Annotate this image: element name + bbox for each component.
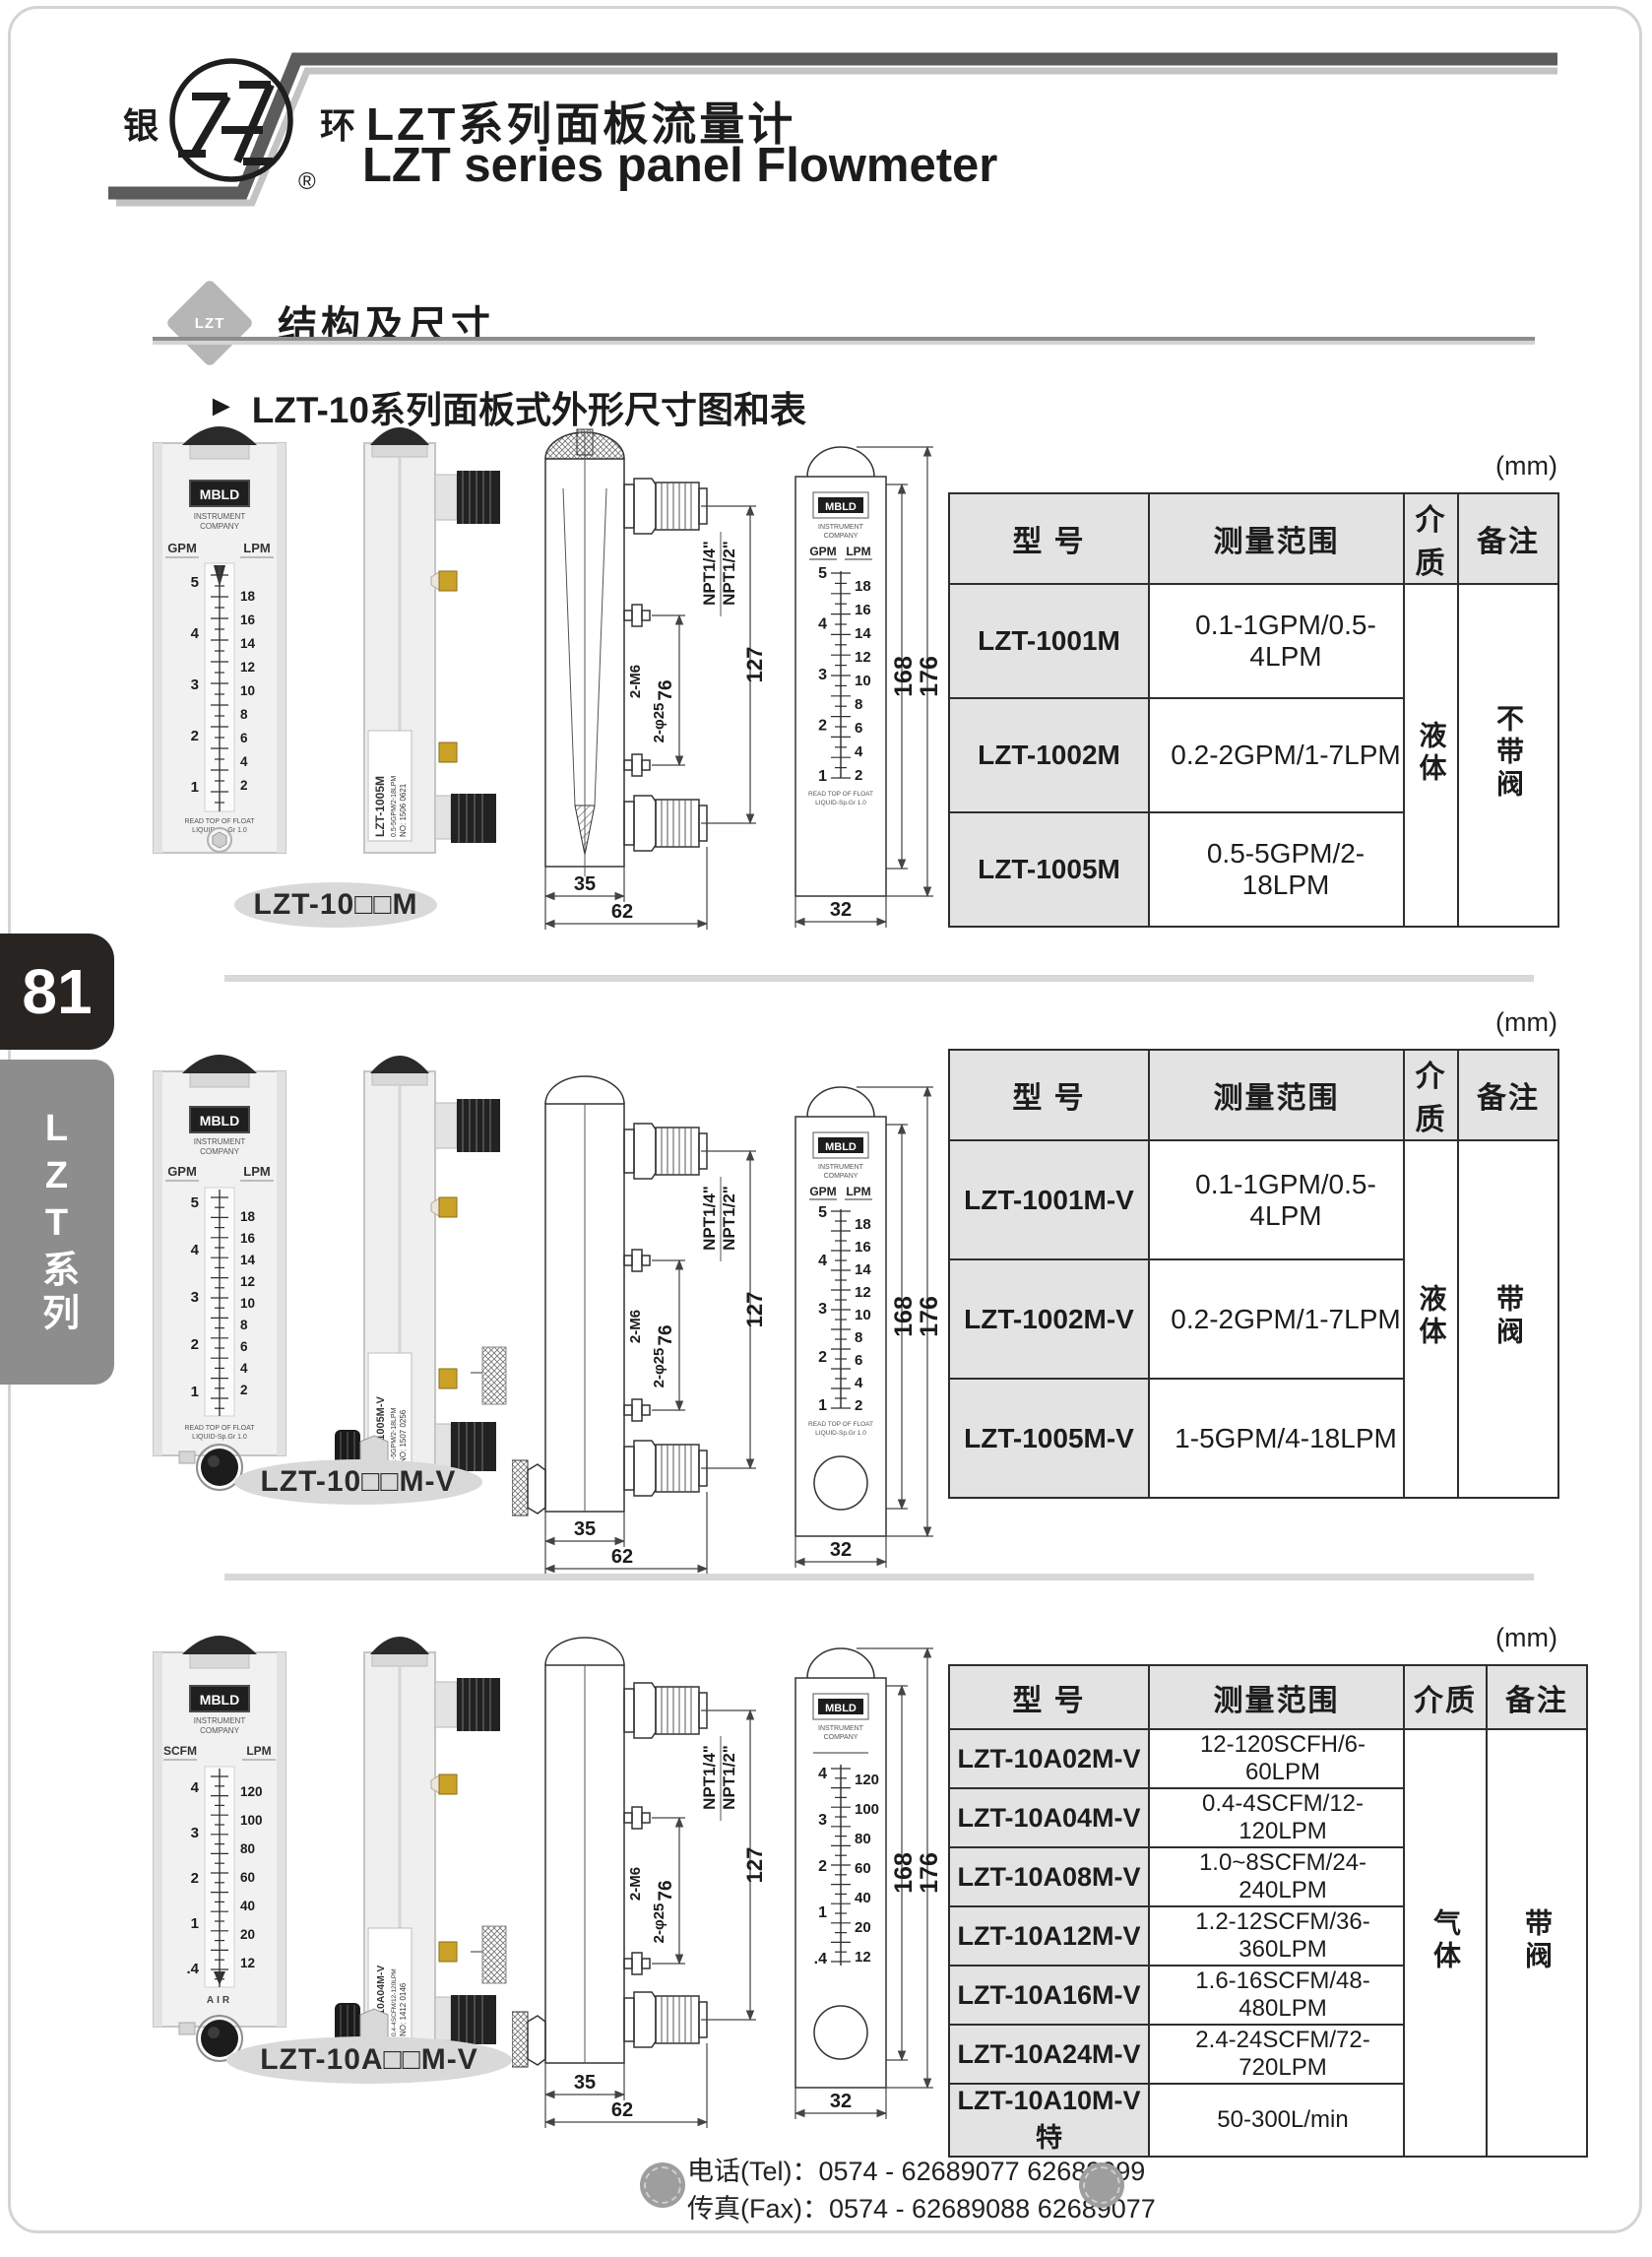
range-cell: 12-120SCFH/6-60LPM	[1149, 1729, 1404, 1788]
svg-text:16: 16	[240, 613, 256, 627]
svg-text:1: 1	[191, 1384, 199, 1400]
dim-168: 168	[890, 1296, 918, 1337]
range-cell: 0.1-1GPM/0.5-4LPM	[1149, 584, 1404, 698]
panel-bolt-bottom	[624, 1399, 650, 1421]
brand-sub2: COMPANY	[824, 1173, 858, 1180]
dim-176: 176	[916, 1296, 943, 1337]
section-rule	[153, 337, 1535, 345]
bottom-fitting	[624, 796, 707, 851]
svg-text:12: 12	[240, 1956, 255, 1970]
dim-168: 168	[890, 1852, 918, 1894]
brand-sub1: INSTRUMENT	[818, 524, 864, 531]
dim-npt12: NPT1/2"	[720, 541, 738, 606]
scale-right: 1201008060402012	[855, 1772, 879, 1966]
dim-127: 127	[742, 1847, 767, 1884]
svg-text:.4: .4	[186, 1961, 199, 1977]
svg-text:60: 60	[855, 1860, 871, 1877]
svg-text:80: 80	[855, 1831, 871, 1847]
unit-left: SCFM	[163, 1744, 197, 1758]
svg-text:2: 2	[240, 1383, 248, 1397]
model-cell: LZT-10A10M-V特	[949, 2084, 1149, 2157]
panel-bolt-top	[624, 1250, 650, 1271]
dim-npt14: NPT1/4"	[700, 541, 719, 606]
loose-valve-part	[482, 1926, 506, 1983]
dim-35: 35	[574, 873, 596, 895]
dim-32: 32	[830, 1539, 852, 1561]
brand-sub2: COMPANY	[200, 1726, 240, 1735]
cap	[370, 427, 429, 445]
dim-76: 76	[656, 679, 676, 700]
dim-m6: 2-M6	[627, 665, 644, 698]
logo-monogram	[178, 85, 273, 161]
unit-left: GPM	[167, 541, 197, 555]
dim-176: 176	[916, 1852, 943, 1894]
svg-text:1: 1	[191, 1915, 199, 1932]
valve-knob	[512, 2012, 545, 2067]
svg-text:14: 14	[855, 1261, 871, 1278]
registered-mark-icon: ®	[298, 168, 316, 195]
cap	[370, 1637, 429, 1654]
scale-left: 54321	[818, 1204, 827, 1414]
model-cell: LZT-10A04M-V	[949, 1788, 1149, 1847]
model-label-row1: LZT-10□□M	[234, 882, 437, 928]
brand-text: MBLD	[825, 1141, 857, 1153]
cap	[182, 426, 257, 445]
range-cell: 1.0~8SCFM/24-240LPM	[1149, 1847, 1404, 1906]
read-note-1: READ TOP OF FLOAT	[184, 818, 255, 825]
table-row: LZT-1001M-V0.1-1GPM/0.5-4LPM液体带阀	[949, 1140, 1558, 1259]
svg-text:4: 4	[191, 1779, 200, 1796]
read-note-2: LIQUID-Sp.Gr 1.0	[815, 800, 866, 806]
unit-right: LPM	[243, 1164, 270, 1179]
panel-bolt-top	[624, 1807, 650, 1829]
drawing-side-row1: 35 62 127 76 NPT1/4" NPT1/2" 2-M6 2-φ25	[512, 423, 807, 945]
dim-176: 176	[916, 656, 943, 697]
sticker-no: NO: 1507 0256	[399, 1409, 408, 1463]
panel-hole	[814, 1456, 867, 1510]
photo-flowmeter-side-row2: LZT-1005M-V 1-5GPM/2-18LPM NO: 1507 0256	[335, 1046, 517, 1494]
col-medium: 介质	[1404, 1050, 1458, 1140]
spec-table-row1: 型 号 测量范围 介质 备注 LZT-1001M0.1-1GPM/0.5-4LP…	[948, 492, 1559, 928]
svg-text:16: 16	[855, 1239, 871, 1256]
remark-cell: 带阀	[1458, 1140, 1558, 1498]
svg-text:10: 10	[855, 673, 871, 689]
read-note-1: READ TOP OF FLOAT	[184, 1425, 255, 1432]
model-cell: LZT-10A08M-V	[949, 1847, 1149, 1906]
dim-phi25: 2-φ25	[651, 703, 667, 743]
svg-text:4: 4	[855, 743, 863, 760]
col-model: 型 号	[949, 493, 1149, 584]
svg-text:4: 4	[240, 1361, 248, 1376]
panel-bolt-bottom	[624, 1953, 650, 1974]
svg-text:4: 4	[855, 1375, 863, 1391]
medium-cell: 气体	[1404, 1729, 1487, 2157]
series-tab-label: LZT系列	[31, 1108, 85, 1336]
brand-sub1: INSTRUMENT	[818, 1725, 864, 1732]
air-label: AIR	[207, 1995, 232, 2006]
panel-bolt-bottom	[624, 754, 650, 776]
dim-127: 127	[742, 647, 767, 683]
svg-text:1: 1	[818, 1904, 827, 1921]
unit-right: LPM	[246, 1744, 271, 1758]
svg-text:2: 2	[191, 1336, 199, 1353]
range-cell: 2.4-24SCFM/72-720LPM	[1149, 2025, 1404, 2084]
photo-flowmeter-side-row3: LZT-10A04M-V 0.4-4SCFM/12-120LPM NO: 141…	[335, 1627, 517, 2065]
svg-text:3: 3	[818, 1812, 827, 1829]
page-title-en: LZT series panel Flowmeter	[362, 138, 997, 193]
scale-right: 18161412108642	[855, 1216, 871, 1414]
range-cell: 0.1-1GPM/0.5-4LPM	[1149, 1140, 1404, 1259]
footer-dot-left	[640, 2162, 685, 2208]
col-range: 测量范围	[1149, 1050, 1404, 1140]
svg-text:6: 6	[855, 1352, 862, 1369]
svg-text:10: 10	[855, 1307, 871, 1323]
dim-m6: 2-M6	[627, 1310, 644, 1343]
svg-text:.4: .4	[814, 1951, 827, 1967]
top-fitting	[624, 479, 707, 534]
range-cell: 0.2-2GPM/1-7LPM	[1149, 698, 1404, 812]
fax-label: 传真(Fax)：	[687, 2194, 829, 2224]
svg-text:60: 60	[240, 1870, 255, 1885]
medium-cell: 液体	[1404, 1140, 1458, 1498]
svg-text:12: 12	[855, 649, 871, 666]
svg-text:1: 1	[818, 768, 827, 785]
scale-ticks	[831, 1769, 851, 1962]
svg-text:2: 2	[855, 767, 862, 784]
top-fitting	[624, 1683, 707, 1738]
svg-text:6: 6	[855, 720, 862, 737]
read-note-1: READ TOP OF FLOAT	[808, 791, 873, 798]
brand-text: MBLD	[825, 1703, 857, 1714]
svg-text:6: 6	[240, 731, 248, 745]
range-cell: 0.4-4SCFM/12-120LPM	[1149, 1788, 1404, 1847]
svg-text:40: 40	[855, 1890, 871, 1906]
svg-text:8: 8	[240, 1318, 248, 1332]
svg-text:14: 14	[855, 625, 871, 642]
range-cell: 0.2-2GPM/1-7LPM	[1149, 1259, 1404, 1379]
model-cell: LZT-10A24M-V	[949, 2025, 1149, 2084]
brass-bolt-top	[439, 1197, 457, 1217]
section-separator-1	[224, 975, 1534, 982]
svg-text:2: 2	[818, 1349, 827, 1366]
brand-sub2: COMPANY	[200, 1147, 240, 1156]
sticker-model: LZT-1005M	[373, 776, 387, 837]
svg-text:100: 100	[855, 1801, 879, 1818]
loose-valve-part	[482, 1347, 506, 1404]
sticker-range: 0.4-4SCFM/12-120LPM	[391, 1968, 398, 2036]
drawing-front-row3: MBLD INSTRUMENT COMPANY 4321.4 120100806…	[788, 1635, 945, 2137]
brand-sub2: COMPANY	[200, 522, 240, 531]
col-remark: 备注	[1458, 1050, 1558, 1140]
svg-text:4: 4	[191, 625, 200, 642]
cap	[182, 1636, 257, 1654]
dim-62: 62	[611, 901, 633, 923]
svg-text:4: 4	[240, 754, 248, 769]
bottom-fitting	[624, 1441, 707, 1496]
dim-127: 127	[742, 1292, 767, 1328]
col-remark: 备注	[1487, 1665, 1587, 1729]
svg-text:3: 3	[191, 1825, 199, 1841]
svg-text:3: 3	[818, 667, 827, 683]
model-cell: LZT-10A12M-V	[949, 1906, 1149, 1966]
model-label-row3: LZT-10A□□M-V	[226, 2036, 512, 2084]
col-model: 型 号	[949, 1050, 1149, 1140]
brand-text: MBLD	[200, 486, 239, 502]
svg-text:8: 8	[855, 1329, 862, 1346]
svg-text:3: 3	[818, 1301, 827, 1318]
dim-62: 62	[611, 2099, 633, 2121]
dim-npt14: NPT1/4"	[700, 1186, 719, 1251]
svg-text:20: 20	[855, 1919, 871, 1936]
table-row: LZT-1001M0.1-1GPM/0.5-4LPM液体不带阀	[949, 584, 1558, 698]
col-range: 测量范围	[1149, 493, 1404, 584]
svg-text:18: 18	[240, 1209, 256, 1224]
svg-text:1: 1	[818, 1397, 827, 1414]
unit-left: GPM	[167, 1164, 197, 1179]
yinhuan-logo: 银 环 ®	[94, 39, 369, 207]
brass-bolt-bottom	[439, 742, 457, 762]
brass-bolt-bottom	[439, 1369, 457, 1388]
svg-text:2: 2	[818, 718, 827, 735]
brand-text: MBLD	[200, 1692, 239, 1708]
table-header-row: 型 号 测量范围 介质 备注	[949, 1665, 1587, 1729]
photo-flowmeter-front-row1: MBLD INSTRUMENT COMPANY GPM LPM 54321 18…	[136, 418, 303, 861]
sticker-range: 1-5GPM/2-18LPM	[391, 1407, 398, 1463]
brand-sub2: COMPANY	[824, 533, 858, 540]
brand-sub1: INSTRUMENT	[194, 512, 246, 521]
brand-sub1: INSTRUMENT	[818, 1164, 864, 1171]
svg-text:2: 2	[240, 778, 248, 793]
svg-text:12: 12	[855, 1284, 871, 1301]
range-cell: 1-5GPM/4-18LPM	[1149, 1379, 1404, 1498]
drawing-side-row2: 35 62 127 76 NPT1/4" NPT1/2" 2-M6 2-φ25	[512, 1068, 807, 1590]
dim-npt12: NPT1/2"	[720, 1186, 738, 1251]
medium-cell: 液体	[1404, 584, 1458, 927]
svg-text:5: 5	[191, 574, 199, 591]
range-cell: 50-300L/min	[1149, 2084, 1404, 2157]
model-cell: LZT-1001M	[949, 584, 1149, 698]
svg-text:20: 20	[240, 1927, 255, 1942]
dim-76: 76	[656, 1324, 676, 1345]
drawing-front-row1: MBLD INSTRUMENT COMPANY GPM LPM 54321 18…	[788, 433, 945, 945]
svg-text:5: 5	[818, 1204, 827, 1221]
model-cell: LZT-1001M-V	[949, 1140, 1149, 1259]
section-badge-diamond: LZT	[165, 279, 255, 368]
svg-text:2: 2	[855, 1397, 862, 1414]
model-cell: LZT-10A16M-V	[949, 1966, 1149, 2025]
brand-text: MBLD	[200, 1113, 239, 1128]
cap	[370, 1056, 429, 1073]
dim-35: 35	[574, 2072, 596, 2094]
dim-35: 35	[574, 1518, 596, 1540]
scale-left: 54321	[818, 565, 827, 785]
brand-sub1: INSTRUMENT	[194, 1137, 246, 1146]
svg-text:4: 4	[191, 1242, 200, 1258]
logo-char-left: 银	[123, 105, 159, 146]
brand-sub2: COMPANY	[824, 1734, 858, 1741]
col-medium: 介质	[1404, 493, 1458, 584]
top-fitting	[624, 1124, 707, 1179]
dim-76: 76	[656, 1880, 676, 1901]
scale-right: 18161412108642	[855, 578, 871, 784]
model-cell: LZT-1002M	[949, 698, 1149, 812]
valve-knob	[201, 2020, 238, 2057]
dim-168: 168	[890, 656, 918, 697]
unit-right: LPM	[846, 1185, 870, 1198]
unit-left: GPM	[809, 1185, 836, 1198]
cap	[182, 1055, 257, 1073]
photo-flowmeter-front-row3: MBLD INSTRUMENT COMPANY SCFM LPM 4321.4 …	[136, 1627, 303, 2065]
brass-bolt-bottom	[439, 1942, 457, 1962]
brand-sub1: INSTRUMENT	[194, 1716, 246, 1725]
panel-bolt-top	[624, 605, 650, 626]
footer-dot-right	[1079, 2162, 1124, 2208]
series-tab: LZT系列	[0, 1060, 114, 1385]
photo-flowmeter-side-row1: LZT-1005M 0.5-5GPM/2-18LPM NO: 1506 0621	[335, 418, 517, 861]
dim-32: 32	[830, 899, 852, 921]
unit-note-3: (mm)	[1459, 1623, 1557, 1653]
read-note-2: LIQUID-Sp.Gr 1.0	[815, 1430, 866, 1437]
panel-hole	[814, 2006, 867, 2059]
range-cell: 1.2-12SCFM/36-360LPM	[1149, 1906, 1404, 1966]
svg-text:80: 80	[240, 1841, 255, 1856]
scale-left: 4321.4	[814, 1766, 827, 1967]
svg-text:8: 8	[240, 707, 248, 722]
dim-npt12: NPT1/2"	[720, 1745, 738, 1810]
top-flange	[435, 475, 457, 520]
svg-text:10: 10	[240, 1296, 255, 1311]
svg-text:120: 120	[240, 1784, 263, 1799]
svg-text:3: 3	[191, 677, 199, 693]
dim-phi25: 2-φ25	[651, 1903, 667, 1944]
brand-text: MBLD	[825, 501, 857, 513]
table-header-row: 型 号 测量范围 介质 备注	[949, 1050, 1558, 1140]
unit-right: LPM	[243, 541, 270, 555]
svg-text:100: 100	[240, 1813, 263, 1828]
brass-bolt-top	[439, 1774, 457, 1794]
page-number: 81	[22, 955, 92, 1028]
svg-text:6: 6	[240, 1339, 248, 1354]
read-note-1: READ TOP OF FLOAT	[808, 1421, 873, 1428]
remark-cell: 带阀	[1487, 1729, 1587, 2157]
spec-table-row3: 型 号 测量范围 介质 备注 LZT-10A02M-V12-120SCFH/6-…	[948, 1664, 1588, 2158]
model-cell: LZT-10A02M-V	[949, 1729, 1149, 1788]
col-medium: 介质	[1404, 1665, 1487, 1729]
svg-text:5: 5	[818, 565, 827, 582]
unit-left: GPM	[809, 545, 836, 558]
svg-text:4: 4	[818, 616, 827, 633]
svg-text:18: 18	[240, 589, 256, 604]
table-row: LZT-10A02M-V12-120SCFH/6-60LPM气体带阀	[949, 1729, 1587, 1788]
svg-text:2: 2	[191, 1870, 199, 1887]
svg-text:3: 3	[191, 1289, 199, 1306]
photo-flowmeter-front-row2: MBLD INSTRUMENT COMPANY GPM LPM 54321 18…	[136, 1046, 303, 1494]
remark-cell: 不带阀	[1458, 584, 1558, 927]
valve-knob	[201, 1449, 238, 1486]
svg-text:14: 14	[240, 1253, 256, 1267]
svg-text:14: 14	[240, 636, 256, 651]
svg-text:120: 120	[855, 1772, 879, 1788]
section-separator-2	[224, 1574, 1534, 1580]
svg-text:12: 12	[240, 660, 255, 675]
svg-text:8: 8	[855, 696, 862, 713]
dim-32: 32	[830, 2091, 852, 2112]
section-badge-label: LZT	[178, 291, 241, 355]
svg-text:10: 10	[240, 683, 255, 698]
model-label-row2: LZT-10□□M-V	[234, 1459, 482, 1505]
logo-char-right: 环	[320, 105, 355, 146]
model-cell: LZT-1005M-V	[949, 1379, 1149, 1498]
dim-m6: 2-M6	[627, 1867, 644, 1901]
dim-62: 62	[611, 1546, 633, 1568]
svg-text:12: 12	[240, 1274, 255, 1289]
svg-text:18: 18	[855, 578, 871, 595]
dim-phi25: 2-φ25	[651, 1348, 667, 1388]
svg-text:18: 18	[855, 1216, 871, 1233]
svg-text:2: 2	[191, 728, 199, 744]
range-cell: 1.6-16SCFM/48-480LPM	[1149, 1966, 1404, 2025]
sticker-no: NO: 1506 0621	[399, 783, 408, 837]
drawing-side-row3: 35 62 127 76 NPT1/4" NPT1/2" 2-M6 2-φ25	[512, 1630, 807, 2142]
svg-text:12: 12	[855, 1949, 871, 1966]
svg-text:4: 4	[818, 1253, 827, 1269]
unit-note-2: (mm)	[1459, 1007, 1557, 1038]
svg-text:40: 40	[240, 1899, 255, 1913]
col-remark: 备注	[1458, 493, 1558, 584]
svg-text:4: 4	[818, 1766, 827, 1782]
svg-text:1: 1	[191, 779, 199, 796]
sticker-range: 0.5-5GPM/2-18LPM	[391, 776, 398, 837]
sticker-no: NO: 1412 0146	[399, 1982, 408, 2036]
svg-text:16: 16	[240, 1231, 256, 1246]
unit-right: LPM	[846, 545, 870, 558]
range-cell: 0.5-5GPM/2-18LPM	[1149, 812, 1404, 927]
tel-label: 电话(Tel)：	[687, 2157, 819, 2186]
read-note-2: LIQUID-Sp.Gr 1.0	[192, 1434, 247, 1441]
svg-text:5: 5	[191, 1194, 199, 1211]
svg-text:2: 2	[818, 1858, 827, 1875]
scale-ticks	[831, 573, 851, 778]
bottom-fitting	[624, 1992, 707, 2047]
drawing-front-row2: MBLD INSTRUMENT COMPANY GPM LPM 54321 18…	[788, 1073, 945, 1585]
brass-bolt-top	[439, 571, 457, 591]
page-number-tab: 81	[0, 934, 114, 1050]
model-cell: LZT-1002M-V	[949, 1259, 1149, 1379]
col-range: 测量范围	[1149, 1665, 1404, 1729]
spec-table-row2: 型 号 测量范围 介质 备注 LZT-1001M-V0.1-1GPM/0.5-4…	[948, 1049, 1559, 1499]
scale-ticks	[831, 1211, 851, 1408]
valve-knob	[512, 1460, 545, 1515]
dim-npt14: NPT1/4"	[700, 1745, 719, 1810]
model-cell: LZT-1005M	[949, 812, 1149, 927]
svg-text:16: 16	[855, 602, 871, 618]
unit-note-1: (mm)	[1459, 451, 1557, 482]
col-model: 型 号	[949, 1665, 1149, 1729]
table-header-row: 型 号 测量范围 介质 备注	[949, 493, 1558, 584]
